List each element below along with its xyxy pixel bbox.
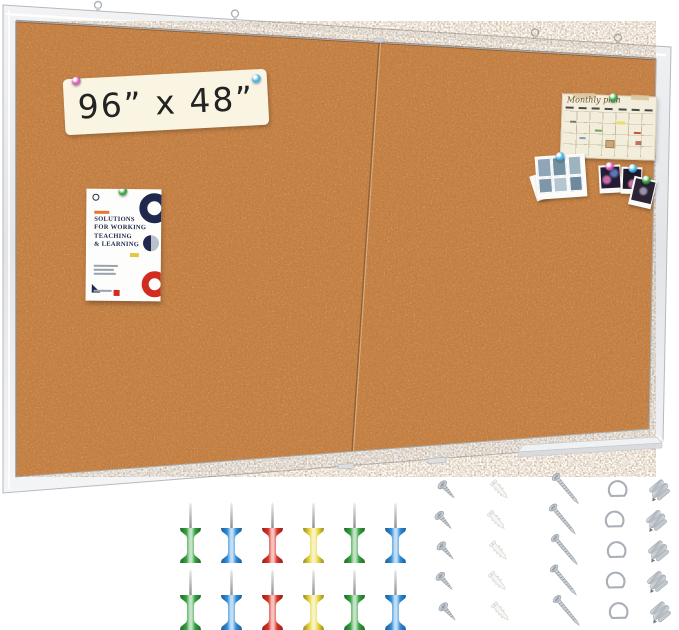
calendar-note xyxy=(570,121,576,123)
push-pins-row-1 xyxy=(180,502,406,563)
push-pin-blue xyxy=(385,569,406,630)
push-pin-red xyxy=(262,569,283,630)
collage-photo xyxy=(553,177,568,193)
pin-needle xyxy=(312,569,315,596)
push-pin-blue xyxy=(221,502,242,563)
latch-icon xyxy=(338,463,354,469)
pin-body xyxy=(385,595,406,630)
poster-red-square-shape xyxy=(114,290,120,296)
poster-fine-print-line xyxy=(94,290,112,292)
pin-body xyxy=(180,595,201,630)
calendar-sticky-note xyxy=(605,140,614,148)
push-pin-yellow xyxy=(303,569,324,630)
mounting-hardware xyxy=(420,472,679,630)
collage-photo xyxy=(538,178,553,194)
calendar-note xyxy=(595,130,602,132)
push-pin-green xyxy=(180,502,201,563)
blue-ball-pin-icon xyxy=(252,74,261,83)
calendar-note xyxy=(616,121,625,124)
pin-needle xyxy=(189,502,192,529)
pin-needle xyxy=(230,502,233,529)
pinned-calendar: Monthly plan xyxy=(560,93,657,160)
pinned-photo-collage xyxy=(535,153,588,199)
pin-body xyxy=(221,595,242,630)
calendar-note xyxy=(635,141,641,145)
pin-needle xyxy=(353,502,356,529)
pin-body xyxy=(262,528,283,563)
pin-body xyxy=(344,528,365,563)
collage-photo xyxy=(567,155,581,175)
pinned-poster: SOLUTIONS FOR WORKING TEACHING & LEARNIN… xyxy=(86,189,162,302)
product-photo: 96” x 48” SOLUTIONS FOR WORKING TEACHING… xyxy=(0,0,679,630)
pin-body xyxy=(180,528,201,563)
hw-short-screws xyxy=(433,479,458,623)
pin-needle xyxy=(312,502,315,529)
pin-needle xyxy=(271,569,274,596)
hinge-icon xyxy=(374,38,384,42)
push-pins-row-2 xyxy=(180,569,406,630)
pin-body xyxy=(344,595,365,630)
push-pin-yellow xyxy=(303,502,324,563)
poster-fine-print-line xyxy=(94,265,118,267)
poster-navy-wedge-shape xyxy=(92,284,101,293)
pin-needle xyxy=(271,502,274,529)
pin-needle xyxy=(353,569,356,596)
latch-icon xyxy=(428,457,446,463)
pin-body xyxy=(385,528,406,563)
pin-body xyxy=(303,528,324,563)
pink-ball-pin-icon xyxy=(72,76,81,85)
push-pin-blue xyxy=(385,502,406,563)
poster-yellow-bar-shape xyxy=(130,253,139,257)
pin-body xyxy=(221,528,242,563)
push-pin-green xyxy=(344,569,365,630)
poster-headline: SOLUTIONS FOR WORKING TEACHING & LEARNIN… xyxy=(94,216,146,250)
poster-logo-icon xyxy=(92,194,99,201)
hw-long-screws xyxy=(548,472,583,628)
size-label: 96” x 48” xyxy=(63,69,270,136)
size-label-text: 96” x 48” xyxy=(77,78,255,126)
push-pin-red xyxy=(262,502,283,563)
washi-tape xyxy=(631,95,649,101)
pin-body xyxy=(262,595,283,630)
pin-needle xyxy=(394,502,397,529)
collage-photo xyxy=(536,157,551,177)
pin-body xyxy=(303,595,324,630)
pin-needle xyxy=(394,569,397,596)
hw-metal-clips xyxy=(642,478,673,626)
push-pin-blue xyxy=(221,569,242,630)
push-pin-green xyxy=(180,569,201,630)
push-pin-green xyxy=(344,502,365,563)
poster-fine-print-line xyxy=(94,273,116,275)
green-ball-pin-icon xyxy=(118,189,127,196)
hw-wall-anchors xyxy=(487,479,511,622)
poster-brand-mark xyxy=(94,211,109,214)
calendar-note xyxy=(580,137,586,139)
hw-d-rings xyxy=(605,480,629,620)
pinned-polaroid xyxy=(598,164,621,193)
calendar-note xyxy=(634,132,641,134)
poster-red-ring-shape xyxy=(142,271,162,297)
collage-photo xyxy=(569,176,583,192)
pin-needle xyxy=(189,569,192,596)
pin-needle xyxy=(230,569,233,596)
poster-fine-print-line xyxy=(94,269,114,271)
